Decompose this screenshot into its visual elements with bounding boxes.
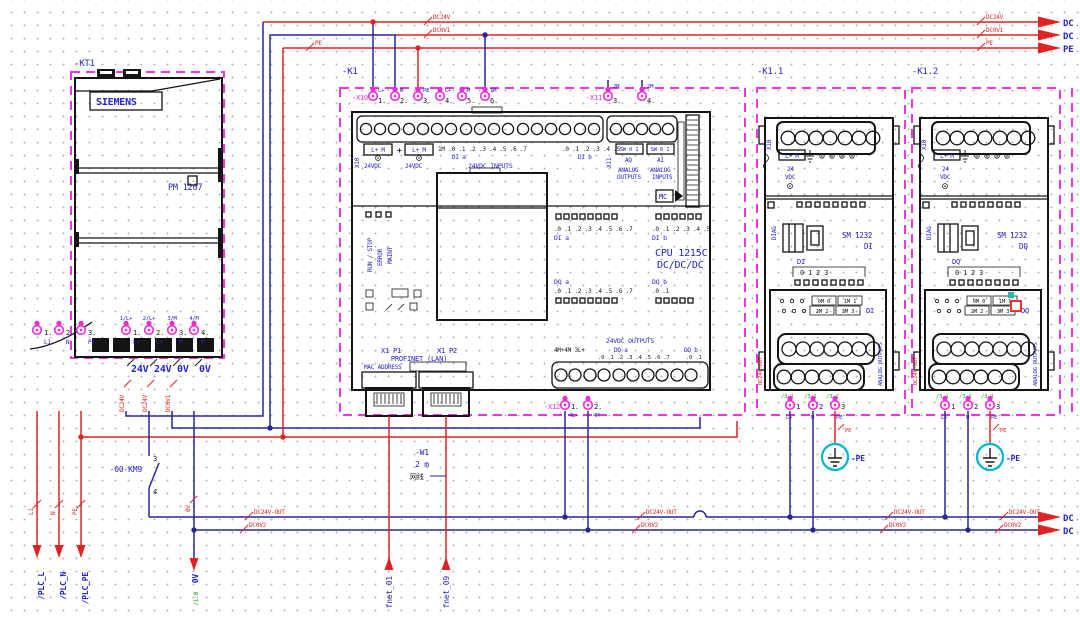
memory-card-label: MC	[659, 193, 667, 201]
wire-name: DC0V1	[165, 394, 172, 412]
module-led-row	[952, 202, 1020, 207]
module-k1-1[interactable]: -K1.1 X10 L+ M 24 VDC DIAG SM 1232 DI DI…	[757, 67, 905, 533]
terminal-label: N	[66, 339, 70, 346]
module-voltage: VDC	[785, 174, 796, 181]
rj45-port-2[interactable]	[419, 372, 473, 416]
wire-name: DC24V	[119, 394, 126, 412]
wire-name: PE	[72, 508, 79, 515]
offpage-label: /PLC_N	[59, 572, 68, 600]
dq-status-leds	[556, 298, 693, 303]
wire-name: DC24V-OUT	[913, 356, 919, 385]
out-dq-b-nums: .0 .1	[686, 355, 702, 361]
terminal-label: 4L+	[569, 413, 579, 419]
terminal-label: PE	[88, 339, 95, 346]
x10-vertical-label: X10	[354, 157, 361, 168]
dq-b-numbers: .0 .1	[652, 288, 670, 295]
side-label: ANALOG OUTPUTS	[1033, 342, 1039, 386]
brand-label: SIEMENS	[96, 97, 137, 108]
plus-mark: +	[397, 146, 402, 155]
plc-cpu-k1[interactable]: -K1 -X10 L+ M PE L+ M 1M 1. 2. 3. 4. 5. …	[340, 67, 745, 533]
offpage-label: /PLC_PE	[81, 572, 90, 605]
channel-group: DQ	[952, 258, 960, 266]
wire-label: DC0V2	[641, 522, 659, 529]
selection-handle-teal[interactable]	[1008, 292, 1014, 298]
out-dq-b: DQ b	[684, 347, 698, 354]
terminal-strip-tag: -X11	[586, 94, 602, 102]
led-error: ERROR	[377, 248, 384, 266]
wire-label: DC24V-OUT	[254, 509, 285, 516]
term-box: 2M 2	[971, 309, 983, 315]
rail-arrow-dc4: DC	[1063, 527, 1073, 537]
terminal-number: 5.	[467, 97, 475, 105]
device-tag: -K1	[342, 67, 358, 77]
led-maint: MAINT	[387, 246, 394, 264]
wire-label: PE	[986, 40, 993, 47]
module-out-holes-2	[777, 370, 861, 384]
terminal-number: 1	[796, 403, 800, 411]
ps-voltage: 24VDC	[405, 163, 423, 170]
terminal-label: L+	[445, 88, 452, 94]
terminal-number: 2.	[66, 329, 74, 337]
out-left-labels: 4M+4M 3L+	[554, 347, 585, 354]
analog-outputs-label: ANALOG	[618, 167, 639, 174]
cpu-name: CPU 1215C	[655, 248, 708, 259]
terminal-number: 3.	[179, 329, 187, 337]
rail-arrow-pe: PE	[1063, 45, 1073, 55]
contact-number: 4	[153, 488, 157, 496]
terminal-number: 1.	[44, 329, 52, 337]
di-b-label: DI b	[652, 234, 667, 242]
pe-ground-label: -PE	[1006, 454, 1020, 463]
port2-label: X1 P2	[437, 347, 457, 355]
terminal-label: PE	[836, 415, 842, 421]
cable-net-label: fnet_01	[385, 576, 394, 609]
terminal-number: 3.	[613, 97, 621, 105]
analog-outputs-label: OUTPUTS	[617, 174, 641, 181]
terminal-number: 1.	[571, 403, 579, 411]
port1-label: X1 P1	[381, 347, 401, 355]
terminal-number: 2	[974, 403, 978, 411]
term-box: 3M 3	[997, 309, 1009, 315]
module-type: DI	[864, 242, 873, 251]
mac-address-label: MAC ADDRESS	[364, 364, 402, 371]
rail-arrow-dc2: DC	[1063, 32, 1073, 42]
ps-voltage: 24VDC	[364, 163, 382, 170]
module-model: SM 1232	[842, 231, 872, 240]
terminal-label: L1	[44, 339, 51, 346]
di-pin-numbers-a: 1M .0 .1 .2 .3 .4 .5 .6 .7	[438, 146, 527, 153]
module-led-row-2	[795, 280, 863, 285]
terminal-label: 4M	[593, 413, 600, 419]
aq-label: AQ	[625, 157, 632, 164]
module-terminal-holes	[936, 131, 1035, 145]
sw-label: SW 0 1	[620, 147, 639, 153]
wire-label: 24V	[154, 364, 172, 375]
terminal-label: M	[201, 339, 205, 346]
cable-tag: -W1	[415, 448, 429, 457]
input-terminal-holes	[360, 123, 599, 134]
rail-arrow-dc3: DC	[1063, 514, 1073, 524]
terminal-strip-tag: -X10	[352, 94, 368, 102]
terminal-label: L+	[156, 339, 163, 346]
terminal-label: L+	[378, 88, 385, 94]
wire-label: DC24V-OUT	[1009, 509, 1040, 516]
pe-ground-label: -PE	[851, 454, 865, 463]
module-out-holes-2	[932, 370, 1016, 384]
channel-numbers: 0 1 2 3	[800, 269, 828, 277]
di-b-numbers: .0 .1 .2 .3 .4 .5	[652, 226, 711, 233]
terminal-number: 3.	[423, 97, 431, 105]
term-box: 0M 0	[973, 299, 985, 305]
wire-label: DC24V	[986, 14, 1004, 21]
terminal-number: 4.	[201, 329, 209, 337]
terminal-number: 3	[841, 403, 845, 411]
cable-net-label: fnet_09	[442, 576, 451, 609]
module-terminal-holes	[781, 131, 880, 145]
analog-terminal-holes	[610, 123, 673, 134]
contact-number: 3	[153, 455, 157, 463]
wire-label: 0V	[177, 364, 189, 375]
ps-pins: L+ M	[412, 147, 426, 154]
channel-numbers: 0 1 2 3	[955, 269, 983, 277]
rj45-port-1[interactable]	[362, 372, 416, 416]
wire-label: DC24V-OUT	[646, 509, 677, 516]
bottom-rails: DC DC DC24V-OUT DC0V2 DC24V-OUT DC0V2 DC…	[149, 509, 1073, 537]
wire-label: DC0V2	[249, 522, 267, 529]
module-voltage: VDC	[940, 174, 951, 181]
wire-label: DC0V1	[986, 27, 1004, 34]
module-out-holes-1	[937, 342, 1035, 356]
wire-label: 24V	[131, 364, 149, 375]
module-voltage: 24	[942, 166, 949, 173]
group-label: DI	[866, 307, 874, 315]
dq-a-label: DQ a	[554, 278, 569, 286]
wire-name: N	[50, 511, 57, 515]
group-label: DQ	[1021, 307, 1029, 315]
diag-label: DIAG	[771, 226, 778, 240]
wire-name: PE	[1000, 428, 1006, 434]
terminal-number: 2	[819, 403, 823, 411]
term-box: 0M 0	[818, 299, 830, 305]
model-label: PM 1207	[168, 183, 203, 193]
output-terminal-holes	[555, 369, 697, 381]
analog-inputs-label: ANALOG	[650, 167, 671, 174]
terminal-label: M	[179, 339, 183, 346]
di-b-label: DI b	[578, 154, 592, 161]
wire-label: DC0V1	[433, 27, 451, 34]
terminal-number: 4.	[445, 97, 453, 105]
dq-a-numbers: .0 .1 .2 .3 .4 .5 .6 .7	[554, 288, 633, 295]
wire-label: DC0V2	[1004, 522, 1022, 529]
rail-arrow-dc1: DC	[1063, 19, 1073, 29]
terminal-number: 3	[996, 403, 1000, 411]
terminal-label: PE	[991, 415, 997, 421]
wire-name: 0V	[185, 505, 192, 512]
module-voltage: 24	[787, 166, 794, 173]
wire-name: DC24V	[142, 394, 149, 412]
term-box: 1M 1	[999, 299, 1011, 305]
term-box: 2M 2	[816, 309, 828, 315]
module-pins: L+ M	[940, 153, 954, 160]
terminal-number: 2.	[594, 403, 602, 411]
wire-label: DC24V	[433, 14, 451, 21]
module-model: SM 1232	[997, 231, 1027, 240]
contactor-km9[interactable]: -00-KM9 3 4	[110, 455, 159, 496]
wire-name: L1	[28, 508, 35, 515]
selection-box-red[interactable]	[1011, 301, 1021, 311]
terminal-label: L+	[133, 339, 140, 346]
terminal-label: M	[467, 88, 471, 94]
outputs-title: 24VDC OUTPUTS	[606, 337, 655, 345]
module-led-row-2	[950, 280, 1018, 285]
module-type: DQ	[1019, 242, 1028, 251]
terminal-label: PE	[423, 88, 429, 94]
schematic-page[interactable]: DC DC PE DC24V DC0V1 PE DC24V DC0V1 PE 2…	[0, 0, 1080, 619]
cable-length: 2 m	[415, 460, 429, 469]
offpage-label: /PLC_L	[37, 572, 46, 600]
device-tag: -K1.1	[757, 67, 783, 77]
term-box: 1M 1	[844, 299, 856, 305]
di-pin-numbers-b: .0 .1 .2 .3 .4 .5	[562, 146, 621, 153]
term-box: 3M 3	[842, 309, 854, 315]
ps-pins: L+ M	[371, 147, 385, 154]
x10-vertical-label: X10	[766, 139, 773, 150]
di-a-numbers: .0 .1 .2 .3 .4 .5 .6 .7	[554, 226, 633, 233]
diag-label: DIAG	[926, 226, 933, 240]
x11-vertical-label: X11	[606, 157, 613, 168]
terminal-label: 2M	[647, 84, 654, 90]
profinet-cables: fnet_01 fnet_09 -W1 2 m 网线	[385, 416, 452, 608]
di-a-label: DI a	[554, 234, 569, 242]
cable-type: 网线	[410, 472, 424, 481]
device-tag: -K1.2	[912, 67, 938, 77]
wire-name: PE	[845, 428, 851, 434]
sw-label: SW 0 1	[651, 147, 670, 153]
offpage-ref: /1.0	[193, 591, 200, 605]
out-dq-a-nums: .0 .1 .2 .3 .4 .5 .6 .7	[598, 355, 670, 361]
wire-label: PE	[315, 40, 322, 47]
di-a-label: DI a	[452, 154, 466, 161]
module-pins: L+ M	[785, 153, 799, 160]
out-dq-a: DQ a	[614, 347, 628, 354]
offpage-label: 0V	[191, 574, 200, 584]
wire-name: DC24V-OUT	[758, 356, 764, 385]
terminal-label: 1M	[490, 88, 497, 94]
terminal-strip-tag: -X12	[544, 403, 560, 411]
terminal-number: 4.	[647, 97, 655, 105]
comm-icons	[366, 289, 421, 310]
terminal-number: 1	[951, 403, 955, 411]
terminal-number: 2.	[400, 97, 408, 105]
dq-b-label: DQ b	[652, 278, 667, 286]
x10-vertical-label: X10	[921, 139, 928, 150]
contactor-tag: -00-KM9	[110, 465, 143, 474]
terminal-label: 2M	[613, 84, 620, 90]
module-k1-2[interactable]: -K1.2 X10 L+ M 24 VDC DIAG SM 1232 DQ DQ…	[912, 67, 1060, 533]
device-tag: -KT1	[74, 59, 95, 69]
terminal-number: 1.	[133, 329, 141, 337]
power-supply-kt1[interactable]: -KT1 SIEMENS PM 1207 1. 2. 3. L1 N PE 1/…	[30, 59, 224, 358]
terminal-number: 1.	[378, 97, 386, 105]
terminal-number: 2.	[156, 329, 164, 337]
ai-label: AI	[657, 157, 664, 164]
cpu-type: DC/DC/DC	[657, 260, 704, 271]
wire-label: 0V	[199, 364, 211, 375]
terminal-number: 3.	[88, 329, 96, 337]
channel-group: DI	[797, 258, 805, 266]
module-out-holes-1	[782, 342, 880, 356]
led-run-stop: RUN / STOP	[367, 237, 374, 272]
side-label: ANALOG OUTPUTS	[878, 342, 884, 386]
analog-inputs-label: INPUTS	[652, 174, 673, 181]
wire-label: DC0V2	[889, 522, 907, 529]
module-led-row	[797, 202, 865, 207]
wire-label: DC24V-OUT	[894, 509, 925, 516]
terminal-number: 6.	[490, 97, 498, 105]
di-status-leds	[556, 214, 701, 219]
inputs-title: 24VDC INPUTS	[468, 162, 513, 170]
